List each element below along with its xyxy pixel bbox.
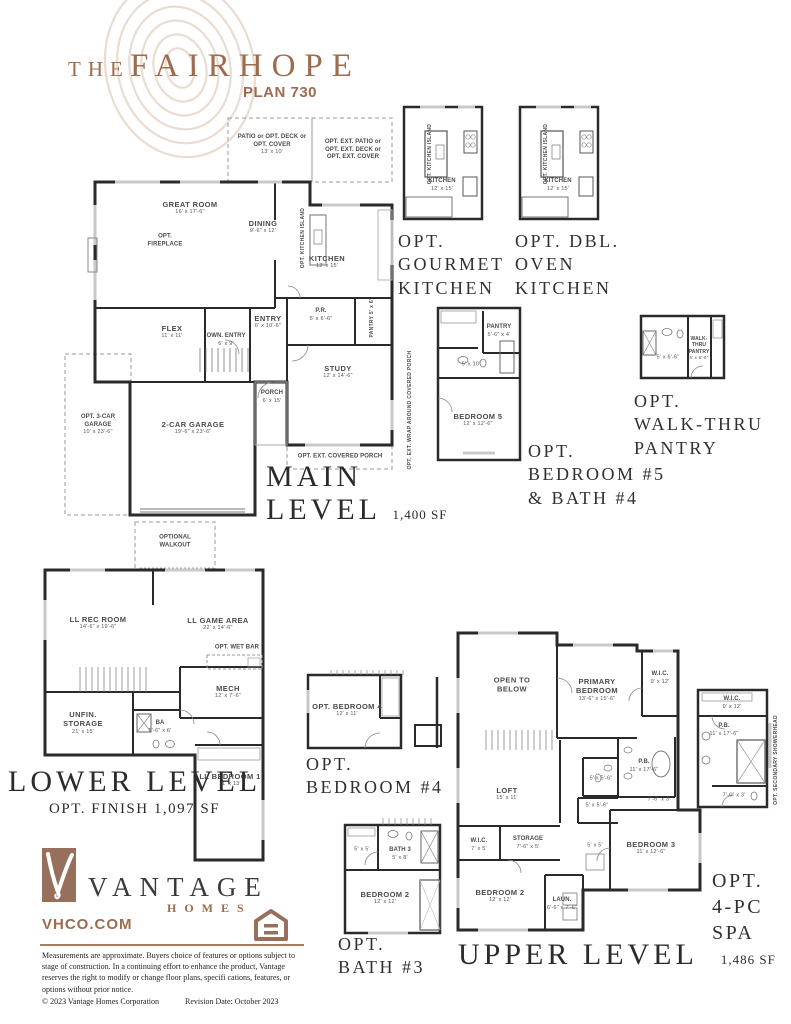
- label-unfin-storage: UNFIN. STORAGE21' x 15': [56, 710, 111, 736]
- label-bath3-bedroom2: BEDROOM 212' x 12': [360, 890, 409, 906]
- label-optional-walkout: OPTIONAL WALKOUT: [148, 535, 203, 550]
- label-walkthru-pantry: WALK-THRU PANTRY5' x 6'-6": [686, 336, 712, 360]
- label-bath3-dims: 5' x 5'-6": [586, 803, 609, 810]
- label-spa-pb: P.B.11' x 17'-6": [710, 723, 739, 737]
- walkthru-pantry-drawing: [635, 310, 730, 385]
- opt-4pc-spa-plan: W.I.C.9' x 12' P.B.11' x 17'-6" 7'-6" x …: [672, 668, 790, 883]
- label-pantry: PANTRY 5' x 6': [369, 298, 375, 337]
- brand-sub-name: HOMES: [167, 901, 252, 916]
- equal-housing-icon: [252, 908, 290, 942]
- label-ext-patio-note: OPT. EXT. PATIO or OPT. EXT. DECK or OPT…: [323, 139, 383, 162]
- bath3-drawing: [333, 812, 458, 937]
- label-opt-secondary-showerhead: OPT. SECONDARY SHOWERHEAD: [773, 715, 779, 805]
- label-loft: LOFT15' x 11': [496, 786, 518, 802]
- opt-dbl-oven-kitchen-plan: OPT. KITCHEN ISLAND KITCHEN12' x 15': [516, 103, 604, 225]
- opt-bath3-caption: OPT.BATH #3: [338, 933, 425, 980]
- opt-walkthru-pantry-plan: 5' x 6'-6" WALK-THRU PANTRY5' x 6'-6": [635, 310, 730, 385]
- label-spa-wic: W.I.C.9' x 12': [723, 696, 742, 710]
- label-dining: DINING9'-6" x 12': [249, 219, 278, 235]
- opt-dbl-oven-kitchen-caption: OPT. DBL.OVENKITCHEN: [515, 230, 620, 300]
- website-link[interactable]: VHCO.COM: [42, 916, 133, 933]
- label-bed5-bath-dims: 5' x 10': [462, 362, 481, 369]
- opt-bath3-plan: 5' x 5' BATH 35' x 8' BEDROOM 212' x 12': [333, 812, 458, 937]
- brand-name: VANTAGE: [88, 872, 269, 903]
- dbl-oven-kitchen-drawing: [516, 103, 604, 225]
- label-gourmet-kitchen: KITCHEN12' x 15': [428, 178, 455, 192]
- label-bedroom5: BEDROOM 512' x 12'-6": [453, 412, 502, 428]
- opt-bedroom5-plan: PANTRY5'-6" x 4' 5' x 10' BEDROOM 512' x…: [433, 303, 525, 468]
- opt-bedroom4-caption: OPT.BEDROOM #4: [306, 753, 444, 800]
- label-bath2-dims: 5' x 5'-6": [590, 776, 613, 783]
- label-powder-room: P.R.5' x 6'-6": [310, 308, 333, 322]
- label-ll-game-area: LL GAME AREA22' x 14'-6": [187, 616, 248, 632]
- label-entry: ENTRY6' x 10'-6": [254, 314, 281, 330]
- label-ba: BA5'-6" x 6': [149, 720, 172, 734]
- label-walkthru-bath-dims: 5' x 6'-6": [657, 355, 680, 362]
- label-primary-bedroom: PRIMARY BEDROOM13'-6" x 15'-6": [567, 677, 627, 703]
- label-bed2-wic: W.I.C.7' x 5': [471, 838, 488, 852]
- plan-title-name: FAIRHOPE: [130, 48, 361, 85]
- label-opt-kitchen-island: OPT. KITCHEN ISLAND: [300, 208, 306, 268]
- label-bed5-pantry: PANTRY5'-6" x 4': [487, 324, 512, 338]
- label-bath3-closet-dims: 5' x 5': [354, 847, 369, 854]
- main-level-caption: MAIN LEVEL 1,400 SF: [266, 460, 447, 526]
- disclaimer-text: Measurements are approximate. Buyers cho…: [42, 950, 302, 995]
- main-level-plan: PATIO or OPT. DECK or OPT. COVER13' x 10…: [60, 110, 440, 520]
- label-upper-wic: W.I.C.9' x 12': [651, 671, 670, 685]
- label-opt-3-car-garage: OPT. 3-CAR GARAGE10' x 23'-6": [71, 414, 126, 436]
- label-storage: STORAGE7'-6" x 5': [513, 836, 543, 850]
- label-patio: PATIO or OPT. DECK or OPT. COVER13' x 10…: [233, 134, 311, 156]
- label-opt-fireplace: OPT. FIREPLACE: [141, 234, 189, 249]
- label-ll-rec-room: LL REC ROOM14'-6" x 19'-6": [70, 615, 127, 631]
- label-open-to-below: OPEN TO BELOW: [485, 676, 540, 695]
- opt-walkthru-pantry-caption: OPT.WALK-THRUPANTRY: [634, 390, 763, 460]
- upper-level-sqft: 1,486 SF: [721, 952, 776, 967]
- opt-gourmet-kitchen-caption: OPT.GOURMETKITCHEN: [398, 230, 505, 300]
- label-own-entry: OWN. ENTRY6' x 9': [205, 333, 247, 347]
- label-bath3: BATH 35' x 8': [389, 847, 411, 861]
- lower-level-sqft: OPT. FINISH 1,097 SF: [8, 801, 261, 818]
- label-flex: FLEX11' x 11': [161, 324, 182, 340]
- label-dbloven-island: OPT. KITCHEN ISLAND: [543, 124, 549, 184]
- footer-divider: [40, 944, 304, 946]
- plan-number: PLAN 730: [243, 84, 317, 101]
- label-opt-ext-wrap-around-porch: OPT. EXT. WRAP AROUND COVERED PORCH: [407, 351, 413, 470]
- label-study: STUDY12' x 14'-6": [323, 364, 352, 380]
- label-2-car-garage: 2-CAR GARAGE19'-6" x 23'-6": [162, 420, 225, 436]
- lower-level-caption: LOWER LEVEL OPT. FINISH 1,097 SF: [8, 765, 261, 818]
- label-upper-bedroom2: BEDROOM 212' x 12': [475, 888, 524, 904]
- label-opt-wet-bar: OPT. WET BAR: [215, 644, 259, 652]
- copyright-text: © 2023 Vantage Homes Corporation: [42, 997, 159, 1006]
- opt-bedroom4-plan: OPT. BEDROOM 412' x 11': [303, 658, 448, 758]
- label-primary-bath: P.B.11' x 17'-6": [630, 759, 659, 773]
- main-level-sqft: 1,400 SF: [392, 507, 447, 522]
- label-dbloven-kitchen: KITCHEN12' x 15': [544, 178, 571, 192]
- label-hall-dims: 7'-6" x 3': [648, 797, 671, 804]
- label-mech: MECH12' x 7'-6": [215, 684, 241, 700]
- label-gourmet-island: OPT. KITCHEN ISLAND: [427, 124, 433, 184]
- label-laundry: LAUN.6'-6" x 7'-6": [547, 897, 577, 911]
- vantage-logo-icon: [42, 848, 76, 902]
- plan-title-the: THE: [68, 57, 130, 82]
- opt-gourmet-kitchen-plan: OPT. KITCHEN ISLAND KITCHEN12' x 15': [400, 103, 488, 225]
- revision-date: Revision Date: October 2023: [185, 997, 279, 1006]
- label-bedroom3: BEDROOM 311' x 12'-6": [626, 840, 675, 856]
- label-linen-dims: 5' x 5': [587, 843, 602, 850]
- label-spa-hall-dims: 7'-6" x 3': [723, 793, 746, 800]
- label-opt-bedroom4: OPT. BEDROOM 412' x 11': [312, 702, 382, 718]
- opt-4pc-spa-caption: OPT.4-PCSPA: [712, 868, 763, 946]
- label-great-room: GREAT ROOM16' x 17'-6": [162, 200, 217, 216]
- label-kitchen: KITCHEN12' x 15': [309, 254, 345, 270]
- gourmet-kitchen-drawing: [400, 103, 488, 225]
- label-porch: PORCH6' x 15': [261, 390, 283, 404]
